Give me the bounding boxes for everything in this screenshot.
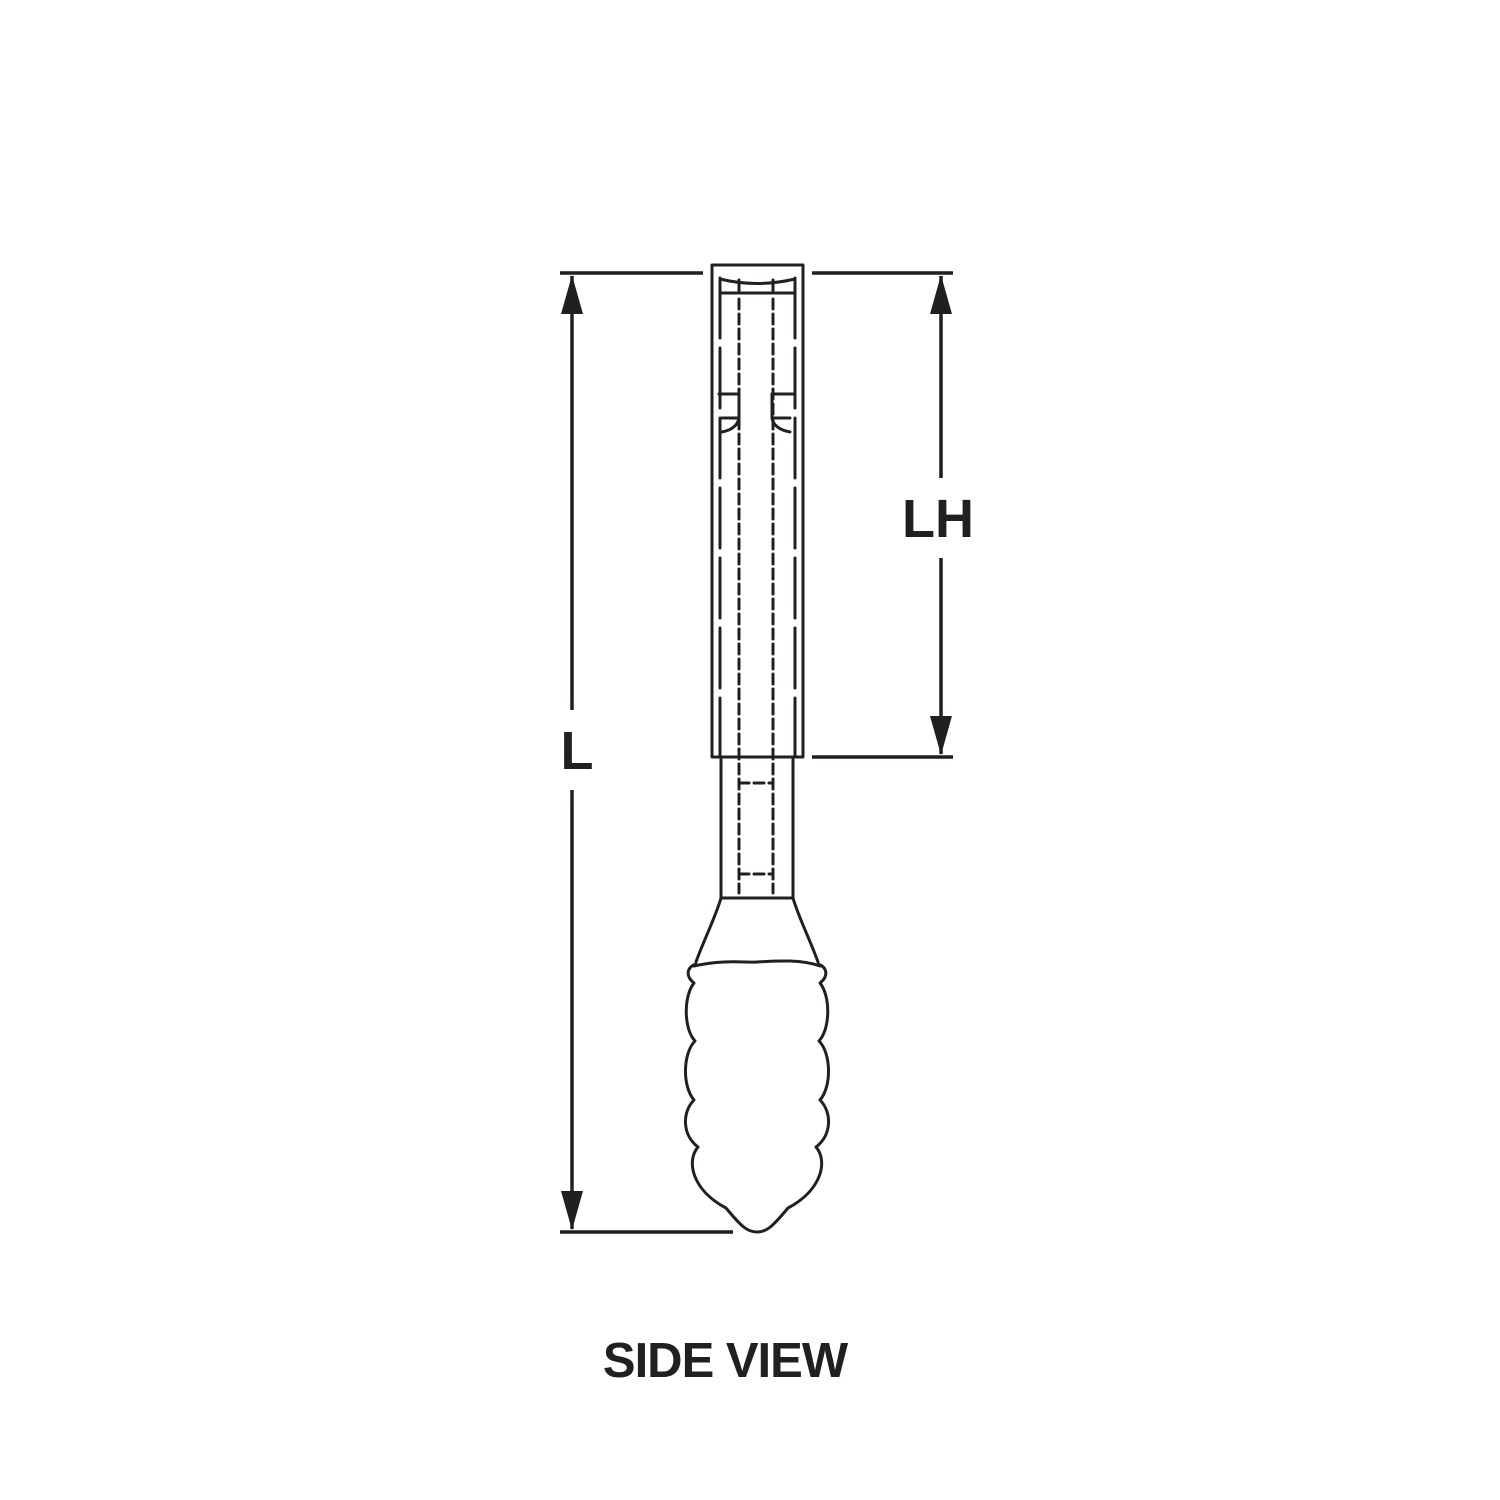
- dimension-label-LH: LH: [902, 489, 974, 549]
- arrowhead-L-down: [561, 1191, 583, 1230]
- dimension-lines: [560, 273, 953, 1232]
- drawing-canvas: L LH SIDE VIEW: [0, 0, 1500, 1500]
- grip-left-profile: [685, 964, 757, 1232]
- collar-seam-line: [694, 961, 820, 966]
- threaded-shaft-outer-body: [712, 265, 803, 757]
- dimension-arrowheads: [561, 275, 952, 1230]
- ferrule-cone: [694, 898, 820, 966]
- cone-right-edge: [793, 898, 818, 962]
- dimension-labels: L LH: [537, 478, 978, 790]
- arrowhead-L-up: [561, 275, 583, 314]
- threaded-shaft: [712, 265, 803, 893]
- detail-runout-curve: [772, 418, 790, 432]
- arrowhead-LH-up: [930, 275, 952, 314]
- top-chamfer-curve: [720, 279, 795, 284]
- dimension-label-L: L: [561, 721, 594, 781]
- arrowhead-LH-down: [930, 716, 952, 755]
- internal-thread-end-detail: [719, 394, 793, 432]
- grip-right-profile: [757, 964, 829, 1232]
- detail-runout-curve: [722, 418, 739, 432]
- grip-handle: [685, 964, 828, 1232]
- technical-drawing-svg: L LH SIDE VIEW: [0, 0, 1500, 1500]
- part-outline: [685, 265, 828, 1232]
- view-caption: SIDE VIEW: [603, 1334, 849, 1388]
- plain-shaft: [721, 757, 793, 898]
- cone-left-edge: [696, 898, 721, 962]
